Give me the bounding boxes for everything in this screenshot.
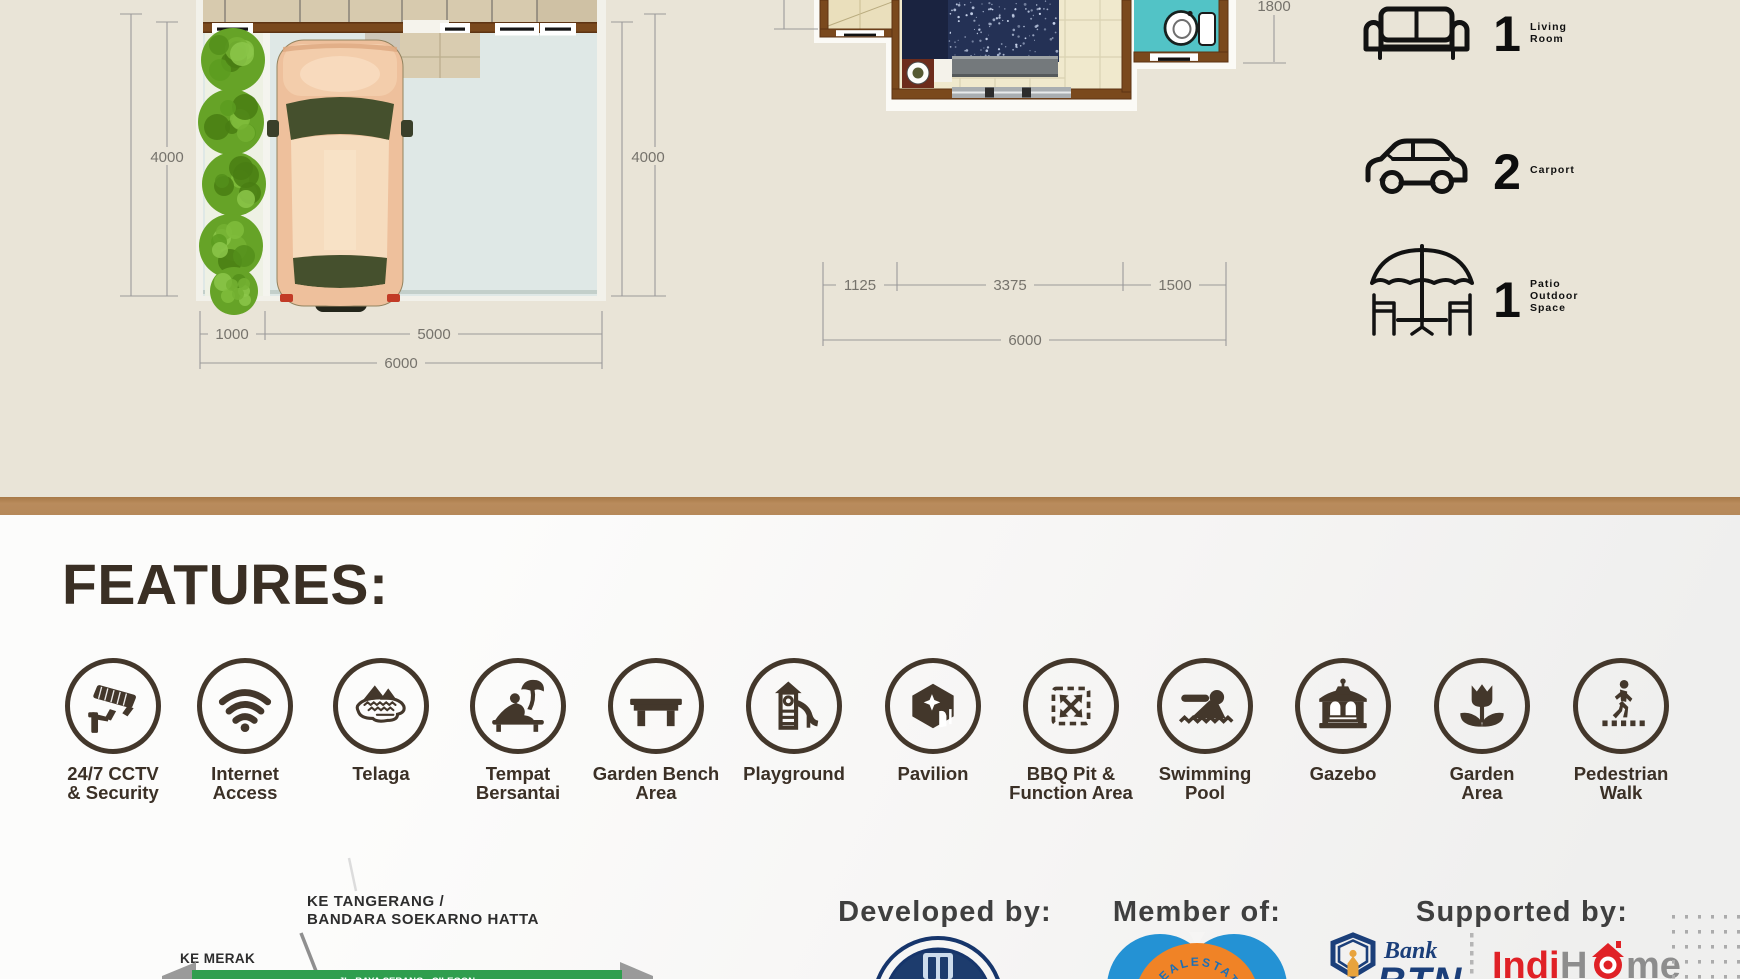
svg-text:Living: Living [1530, 21, 1567, 33]
svg-text:Space: Space [1530, 302, 1566, 314]
svg-text:Room: Room [1530, 33, 1564, 45]
svg-text:1: 1 [1493, 6, 1521, 62]
svg-text:6000: 6000 [1008, 332, 1041, 349]
svg-text:Patio: Patio [1530, 278, 1561, 290]
svg-text:1500: 1500 [1158, 277, 1191, 294]
svg-text:4000: 4000 [631, 149, 664, 166]
svg-text:6000: 6000 [384, 355, 417, 372]
svg-text:3375: 3375 [993, 277, 1026, 294]
svg-text:Outdoor: Outdoor [1530, 290, 1578, 302]
svg-text:1800: 1800 [1257, 0, 1290, 15]
svg-text:1125: 1125 [844, 277, 876, 294]
svg-text:H: H [1560, 945, 1587, 979]
svg-text:1: 1 [1493, 272, 1521, 328]
svg-text:Indi: Indi [1492, 945, 1560, 979]
svg-text:5000: 5000 [417, 326, 450, 343]
svg-text:Carport: Carport [1530, 164, 1575, 176]
svg-text:4000: 4000 [150, 149, 183, 166]
svg-text:1000: 1000 [215, 326, 248, 343]
svg-text:2: 2 [1493, 144, 1521, 200]
svg-text:BTN: BTN [1377, 960, 1462, 979]
